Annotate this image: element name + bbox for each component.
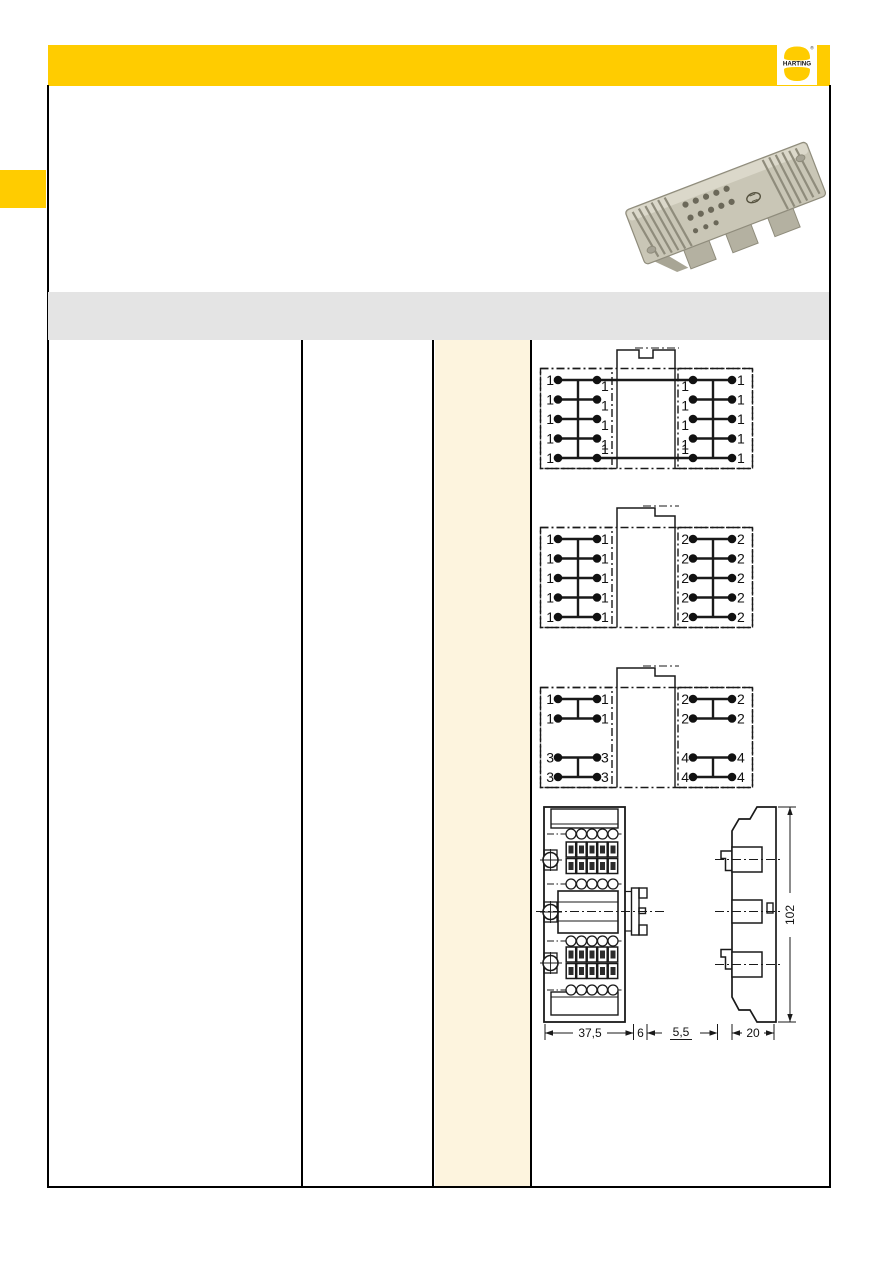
svg-text:1: 1 bbox=[737, 372, 745, 388]
svg-text:4: 4 bbox=[737, 769, 745, 785]
svg-text:2: 2 bbox=[737, 711, 745, 727]
svg-text:1: 1 bbox=[601, 378, 609, 394]
svg-text:1: 1 bbox=[601, 417, 609, 433]
svg-text:4: 4 bbox=[681, 750, 689, 766]
registered-mark: ® bbox=[810, 45, 814, 51]
page-edge-tab bbox=[0, 170, 46, 208]
svg-text:2: 2 bbox=[681, 590, 689, 606]
svg-text:1: 1 bbox=[546, 551, 554, 567]
svg-text:3: 3 bbox=[601, 769, 609, 785]
svg-text:1: 1 bbox=[546, 711, 554, 727]
schematic-jumpered-single-potential: 11111111111111111111 bbox=[535, 345, 760, 475]
svg-text:1: 1 bbox=[601, 590, 609, 606]
svg-text:4: 4 bbox=[737, 750, 745, 766]
svg-text:3: 3 bbox=[546, 769, 554, 785]
svg-text:1: 1 bbox=[601, 441, 609, 457]
svg-text:2: 2 bbox=[737, 531, 745, 547]
table-rule-1 bbox=[301, 340, 303, 1186]
table-rule-3 bbox=[530, 340, 532, 1186]
svg-text:1: 1 bbox=[546, 431, 554, 447]
svg-text:1: 1 bbox=[601, 531, 609, 547]
svg-text:2: 2 bbox=[737, 609, 745, 625]
svg-text:1: 1 bbox=[546, 450, 554, 466]
table-rule-2 bbox=[432, 340, 434, 1186]
svg-text:1: 1 bbox=[546, 691, 554, 707]
table-highlight-column bbox=[435, 340, 530, 1186]
dimension-drawing-front-view: 37,5 6 bbox=[535, 800, 670, 1050]
svg-text:2: 2 bbox=[681, 609, 689, 625]
content-border-bottom bbox=[47, 1186, 831, 1188]
svg-text:1: 1 bbox=[546, 590, 554, 606]
catalog-page: HARTING ® bbox=[0, 0, 893, 1263]
svg-text:2: 2 bbox=[681, 570, 689, 586]
svg-text:1: 1 bbox=[601, 551, 609, 567]
harting-logo: HARTING ® bbox=[777, 42, 817, 85]
dimension-drawing-side-view: 102 5,5 20 bbox=[660, 800, 830, 1050]
svg-text:1: 1 bbox=[601, 691, 609, 707]
schematic-four-potentials: 1122112233443344 bbox=[535, 664, 760, 794]
svg-text:2: 2 bbox=[681, 691, 689, 707]
product-photo bbox=[605, 120, 845, 280]
svg-text:1: 1 bbox=[737, 392, 745, 408]
harting-logo-icon: HARTING ® bbox=[777, 42, 817, 85]
svg-text:1: 1 bbox=[681, 378, 689, 394]
svg-text:2: 2 bbox=[681, 551, 689, 567]
dim-depth-label: 20 bbox=[746, 1026, 760, 1040]
svg-text:1: 1 bbox=[546, 609, 554, 625]
header-bar bbox=[48, 45, 830, 86]
svg-text:1: 1 bbox=[681, 417, 689, 433]
svg-text:1: 1 bbox=[601, 570, 609, 586]
svg-text:1: 1 bbox=[601, 609, 609, 625]
schematic-two-potentials: 11221122112211221122 bbox=[535, 504, 760, 634]
svg-text:2: 2 bbox=[737, 570, 745, 586]
svg-text:1: 1 bbox=[546, 392, 554, 408]
dim-width-label: 37,5 bbox=[578, 1026, 602, 1040]
svg-text:1: 1 bbox=[737, 450, 745, 466]
svg-text:1: 1 bbox=[737, 411, 745, 427]
svg-text:3: 3 bbox=[601, 750, 609, 766]
svg-text:1: 1 bbox=[681, 441, 689, 457]
svg-text:1: 1 bbox=[546, 411, 554, 427]
svg-text:4: 4 bbox=[681, 769, 689, 785]
svg-text:1: 1 bbox=[601, 711, 609, 727]
svg-text:2: 2 bbox=[737, 691, 745, 707]
svg-text:1: 1 bbox=[737, 431, 745, 447]
section-divider-band bbox=[48, 292, 829, 340]
harting-logo-text: HARTING bbox=[783, 61, 811, 68]
dim-lip-label: 5,5 bbox=[673, 1025, 690, 1039]
dim-height-label: 102 bbox=[783, 905, 797, 925]
svg-text:2: 2 bbox=[737, 551, 745, 567]
svg-text:1: 1 bbox=[546, 570, 554, 586]
svg-text:2: 2 bbox=[681, 531, 689, 547]
svg-text:1: 1 bbox=[546, 372, 554, 388]
svg-text:3: 3 bbox=[546, 750, 554, 766]
dim-offset-label: 6 bbox=[637, 1026, 644, 1040]
svg-text:1: 1 bbox=[601, 398, 609, 414]
svg-text:2: 2 bbox=[681, 711, 689, 727]
content-border-left bbox=[47, 85, 49, 1188]
svg-text:1: 1 bbox=[681, 398, 689, 414]
svg-text:2: 2 bbox=[737, 590, 745, 606]
svg-text:1: 1 bbox=[546, 531, 554, 547]
